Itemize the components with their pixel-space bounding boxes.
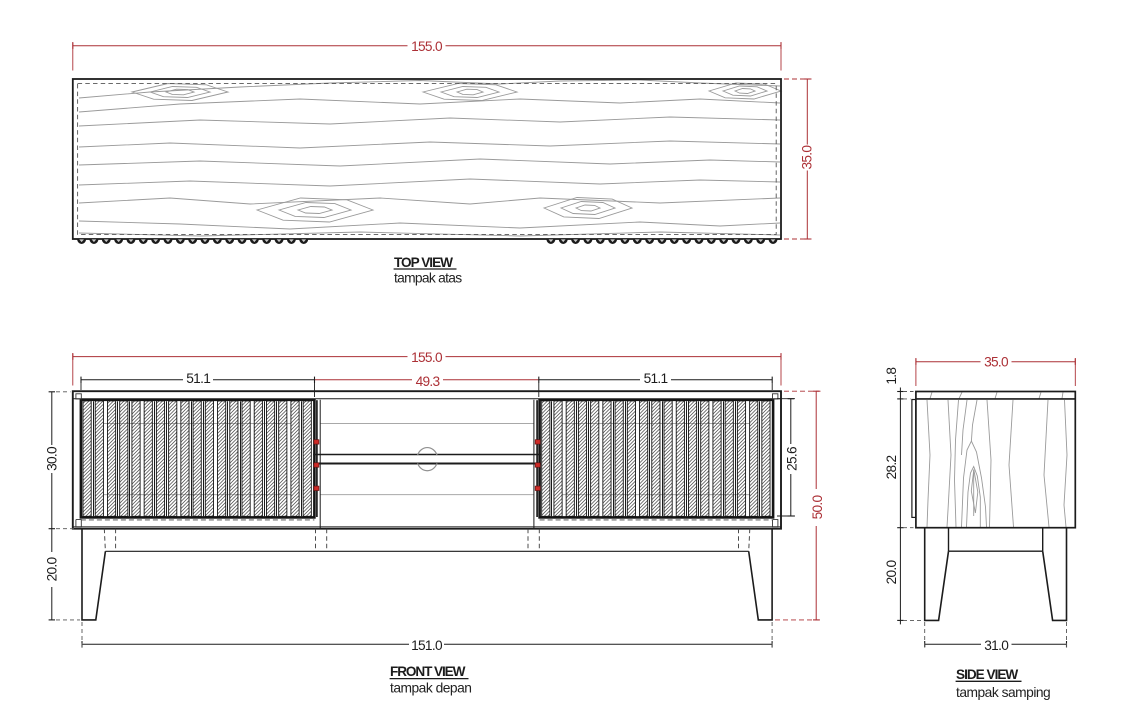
svg-text:51.1: 51.1 bbox=[186, 371, 210, 386]
svg-text:tampak depan: tampak depan bbox=[390, 680, 471, 695]
svg-text:tampak samping: tampak samping bbox=[956, 685, 1050, 700]
svg-text:FRONT VIEW: FRONT VIEW bbox=[390, 664, 466, 679]
svg-text:30.0: 30.0 bbox=[44, 446, 59, 471]
svg-text:20.0: 20.0 bbox=[884, 559, 899, 584]
svg-text:50.0: 50.0 bbox=[810, 494, 825, 519]
svg-text:28.2: 28.2 bbox=[884, 455, 899, 479]
svg-text:155.0: 155.0 bbox=[411, 39, 443, 54]
svg-text:20.0: 20.0 bbox=[44, 556, 59, 581]
svg-text:25.6: 25.6 bbox=[784, 446, 799, 471]
svg-text:31.0: 31.0 bbox=[984, 638, 1009, 653]
svg-text:51.1: 51.1 bbox=[644, 371, 668, 386]
svg-text:35.0: 35.0 bbox=[984, 354, 1009, 369]
svg-text:tampak atas: tampak atas bbox=[394, 271, 462, 286]
svg-text:SIDE VIEW: SIDE VIEW bbox=[956, 667, 1018, 682]
svg-text:155.0: 155.0 bbox=[411, 350, 443, 365]
svg-text:35.0: 35.0 bbox=[800, 145, 815, 170]
svg-text:49.3: 49.3 bbox=[416, 374, 441, 389]
svg-text:TOP VIEW: TOP VIEW bbox=[394, 255, 453, 270]
svg-text:151.0: 151.0 bbox=[411, 638, 443, 653]
svg-text:1.8: 1.8 bbox=[884, 367, 899, 385]
